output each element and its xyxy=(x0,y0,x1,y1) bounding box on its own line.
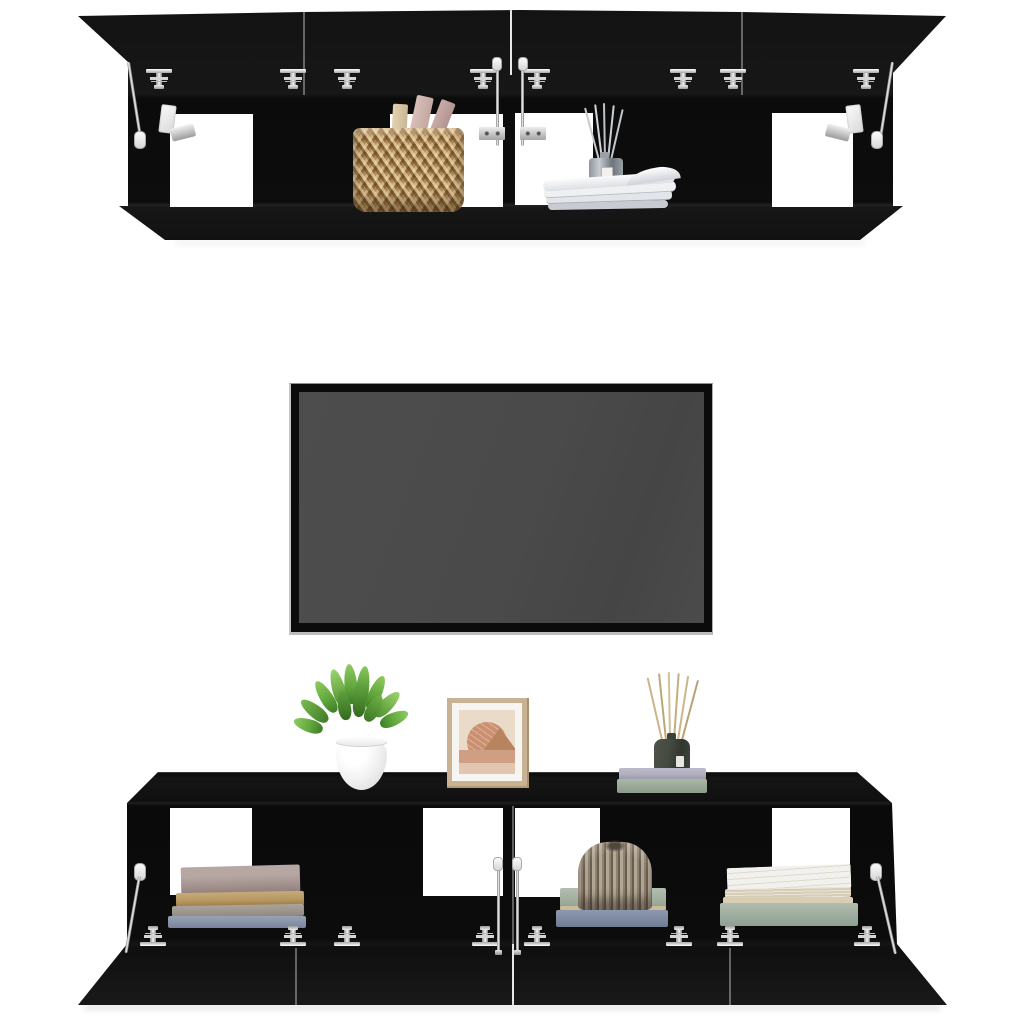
flap-hinge xyxy=(140,921,166,947)
floor-shadow xyxy=(85,1005,940,1012)
flap-hinge xyxy=(720,68,746,94)
cabinet-seam xyxy=(512,806,514,944)
flap-hinge xyxy=(334,68,360,94)
gas-strut xyxy=(516,866,519,954)
flap-hinge xyxy=(853,68,879,94)
white-wall-cutout xyxy=(423,808,503,896)
strut-cap xyxy=(871,131,883,149)
flap-hinge xyxy=(717,921,743,947)
flap-hinge xyxy=(524,68,550,94)
seagrass-basket xyxy=(353,128,464,212)
flap-hinge xyxy=(854,921,880,947)
art-band xyxy=(459,763,515,774)
strut-cap xyxy=(492,57,502,71)
flap-hinge xyxy=(666,921,692,947)
flap-seam xyxy=(295,948,297,1005)
gas-strut xyxy=(497,866,500,954)
reed-stick xyxy=(668,672,671,740)
tv xyxy=(289,383,713,635)
diffuser-label xyxy=(676,756,684,767)
flap-hinge xyxy=(524,921,550,947)
wall-mount-rail xyxy=(520,127,546,140)
stacked-book xyxy=(617,779,707,793)
tv-screen xyxy=(299,392,704,623)
strut-foot xyxy=(495,950,502,955)
flap-hinge xyxy=(334,921,360,947)
stacked-book xyxy=(556,910,668,927)
flap-hinge xyxy=(470,68,496,94)
product-photo: Four black wall-mounted TV hanging cabin… xyxy=(0,0,1024,1024)
strut-cap xyxy=(518,57,528,71)
diffuser-bottle xyxy=(654,739,690,770)
flap-hinge xyxy=(280,68,306,94)
strut-cap xyxy=(134,131,146,149)
strut-cap xyxy=(493,857,503,871)
strut-cap xyxy=(512,857,522,871)
flap-hinge xyxy=(146,68,172,94)
picture-frame xyxy=(447,698,529,788)
wall-mount-rail xyxy=(479,127,505,140)
cabinet-seam xyxy=(510,10,512,75)
strut-foot xyxy=(514,950,521,955)
art-band xyxy=(459,750,515,763)
flap-hinge xyxy=(670,68,696,94)
floor-shadow xyxy=(175,241,865,246)
frame-mat xyxy=(452,703,522,781)
abstract-art-print xyxy=(459,710,515,774)
flap-hinge xyxy=(280,921,306,947)
stacked-book xyxy=(181,864,301,894)
flap-hinge xyxy=(472,921,498,947)
pleated-paper-ornament xyxy=(578,842,652,910)
flap-seam xyxy=(729,948,731,1005)
